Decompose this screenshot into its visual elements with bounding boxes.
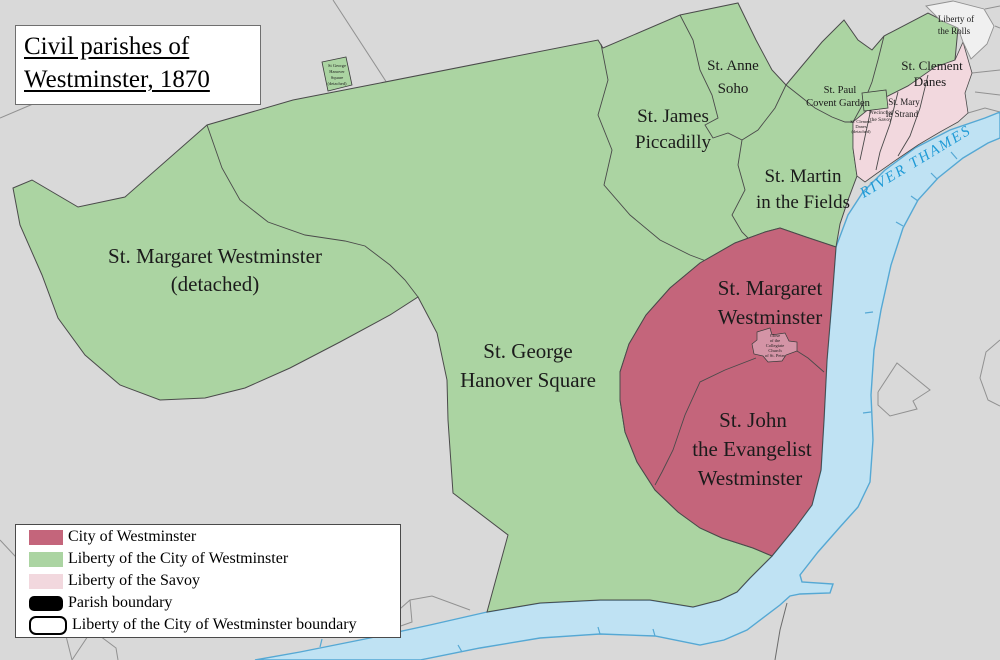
label-st-martin-2: in the Fields [756,192,850,213]
liberty-boundary-swatch [29,616,67,635]
parish-boundary-swatch [29,596,63,611]
legend-item-liberty: Liberty of the City of Westminster [16,548,400,570]
label-st-margaret-2: Westminster [718,305,822,329]
label-st-paul: St. Paul [824,85,857,96]
legend-label: City of Westminster [68,528,196,546]
map-canvas: St. Margaret Westminster (detached) St. … [0,0,1000,660]
label-st-clement: St. Clement [901,58,963,73]
label-liberty-rolls-2: the Rolls [938,26,971,36]
label-precinct-savoy-2: the Savoy [870,117,892,123]
label-st-james-2: Piccadilly [635,132,711,153]
label-st-margaret-detached: St. Margaret Westminster [108,244,322,268]
label-st-margaret: St. Margaret [718,276,823,300]
label-st-mary: St. Mary [888,97,920,107]
label-abbey-close-5: of St. Peter [765,353,786,358]
label-st-george-2: Hanover Square [460,368,596,392]
city-of-westminster-swatch [29,530,63,545]
map-title-line1: Civil parishes of [24,30,252,63]
label-st-clement-2: Danes [914,74,947,89]
label-st-george: St. George [483,339,572,363]
label-george-detached-2: Hanover [329,69,345,74]
legend-item-parish-boundary: Parish boundary [16,592,400,614]
legend-label: Parish boundary [68,594,172,612]
legend: City of Westminster Liberty of the City … [15,524,401,638]
label-george-detached: St George [328,63,346,68]
label-george-detached-4: (detached) [328,81,347,86]
label-liberty-rolls: Liberty of [938,14,974,24]
legend-label: Liberty of the City of Westminster [68,550,288,568]
label-st-anne: St. Anne [707,58,759,74]
label-st-james: St. James [637,106,709,127]
label-st-john: St. John [719,408,787,432]
liberty-of-savoy-swatch [29,574,63,589]
label-st-john-2: the Evangelist [692,437,812,461]
label-clement-detached-3: (detached) [852,129,871,134]
label-precinct-savoy: Precinct of [869,109,893,116]
label-st-anne-2: Soho [718,81,749,97]
legend-item-liberty-boundary: Liberty of the City of Westminster bound… [16,614,400,636]
label-st-john-3: Westminster [698,466,802,490]
label-george-detached-3: Square [331,75,344,80]
legend-label: Liberty of the Savoy [68,572,200,590]
legend-item-savoy: Liberty of the Savoy [16,570,400,592]
label-st-martin: St. Martin [764,166,842,187]
legend-item-city: City of Westminster [16,526,400,548]
map-title-box: Civil parishes of Westminster, 1870 [15,25,261,105]
map-title-line2: Westminster, 1870 [24,63,252,96]
label-st-paul-2: Covent Garden [806,98,871,109]
label-st-margaret-detached-2: (detached) [171,272,260,296]
liberty-of-westminster-swatch [29,552,63,567]
legend-label: Liberty of the City of Westminster bound… [72,616,357,634]
